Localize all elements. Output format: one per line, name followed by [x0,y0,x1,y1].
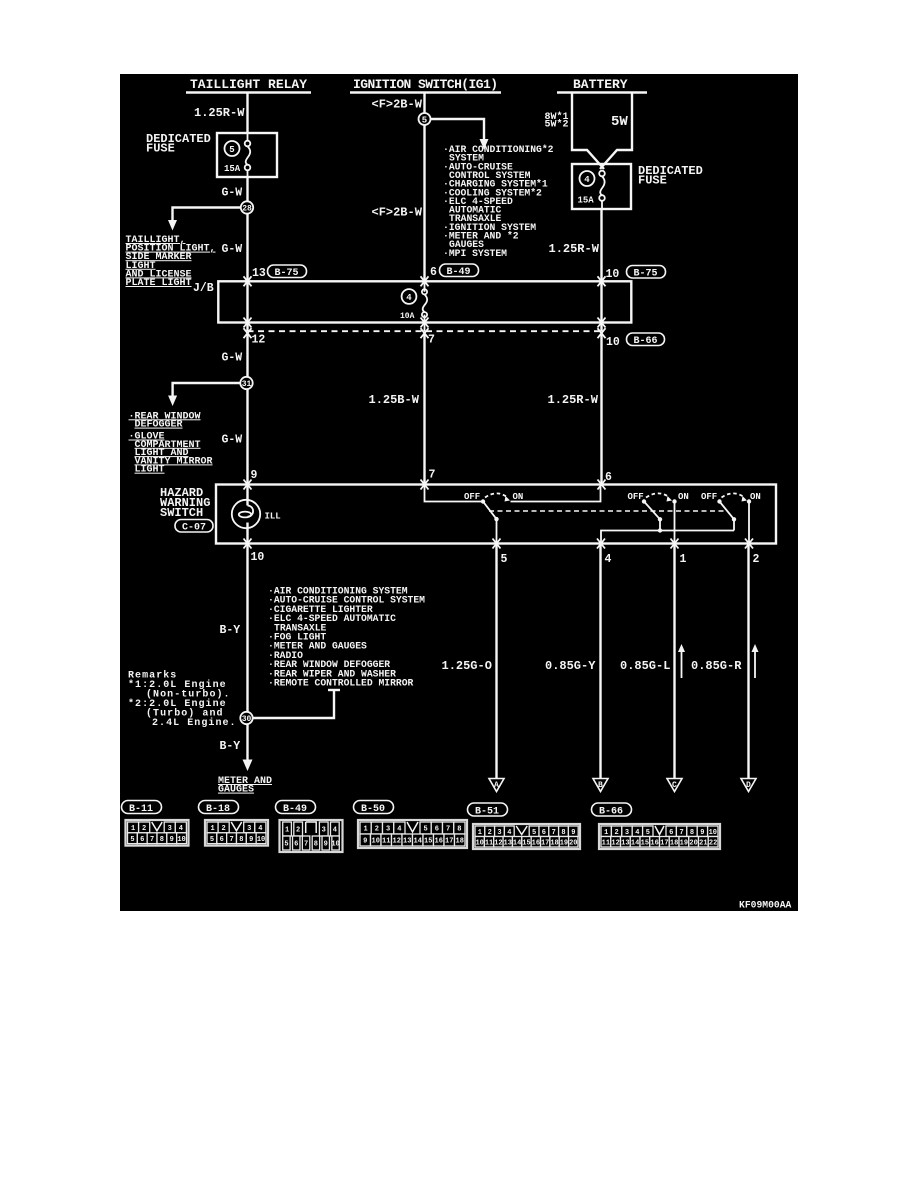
svg-text:12: 12 [393,838,401,846]
svg-text:8: 8 [457,826,461,834]
svg-text:14: 14 [414,838,422,846]
svg-text:15: 15 [424,838,432,846]
svg-text:10: 10 [251,551,265,564]
svg-text:1.25R-W: 1.25R-W [194,106,245,120]
svg-text:OFF: OFF [464,492,480,502]
svg-text:B-49: B-49 [283,804,307,815]
svg-text:·REMOTE CONTROLLED MIRROR: ·REMOTE CONTROLLED MIRROR [268,678,414,689]
svg-text:4: 4 [406,293,412,303]
svg-text:20: 20 [689,839,697,847]
svg-text:SWITCH: SWITCH [160,506,203,520]
svg-text:18: 18 [550,839,558,847]
svg-text:10: 10 [709,829,717,837]
svg-text:1.25G-O: 1.25G-O [442,659,492,673]
svg-text:B-18: B-18 [206,804,230,815]
svg-text:8: 8 [314,841,318,849]
svg-text:DEFOGGER: DEFOGGER [135,420,183,431]
svg-text:5: 5 [646,829,650,837]
svg-text:13: 13 [252,267,266,280]
svg-text:1.25R-W: 1.25R-W [549,242,600,256]
svg-text:7: 7 [446,826,450,834]
svg-text:5: 5 [501,553,508,566]
svg-text:3: 3 [497,829,501,837]
svg-text:5: 5 [210,836,214,844]
svg-text:8: 8 [239,836,243,844]
svg-text:LIGHT: LIGHT [135,465,165,476]
svg-text:PLATE LIGHT: PLATE LIGHT [126,278,192,289]
svg-text:3: 3 [322,827,326,835]
svg-text:12: 12 [494,839,502,847]
svg-text:10: 10 [177,836,185,844]
svg-text:10: 10 [475,839,483,847]
svg-text:6: 6 [430,266,437,279]
svg-text:1.25R-W: 1.25R-W [548,393,599,407]
svg-text:2: 2 [222,825,226,833]
svg-text:1: 1 [131,825,135,833]
svg-text:13: 13 [403,838,411,846]
svg-text:2: 2 [296,827,300,835]
svg-text:12: 12 [611,839,619,847]
svg-text:10: 10 [606,268,620,281]
svg-text:8: 8 [561,829,565,837]
svg-text:9: 9 [571,829,575,837]
svg-text:2: 2 [488,829,492,837]
svg-text:7: 7 [229,836,233,844]
svg-text:21: 21 [699,839,707,847]
svg-text:10: 10 [257,836,265,844]
svg-text:6: 6 [435,826,439,834]
svg-text:B-75: B-75 [634,268,658,279]
svg-text:3: 3 [247,825,251,833]
svg-text:15: 15 [522,839,530,847]
svg-text:9: 9 [700,829,704,837]
svg-text:5: 5 [532,829,536,837]
svg-text:G-W: G-W [222,434,243,447]
svg-text:2: 2 [375,826,379,834]
svg-text:FUSE: FUSE [638,174,667,188]
svg-text:G-W: G-W [222,352,243,365]
svg-text:9: 9 [363,838,367,846]
svg-text:ON: ON [678,492,689,502]
svg-text:B-11: B-11 [129,804,153,815]
svg-text:7: 7 [304,841,308,849]
svg-text:1: 1 [680,553,687,566]
svg-text:B-Y: B-Y [220,740,241,753]
svg-text:7: 7 [552,829,556,837]
svg-text:B-66: B-66 [634,336,658,347]
svg-text:0.85G-L: 0.85G-L [620,659,670,673]
svg-text:1: 1 [478,829,482,837]
svg-text:1.25B-W: 1.25B-W [369,393,420,407]
svg-text:10: 10 [606,336,620,349]
svg-text:15A: 15A [224,164,241,174]
svg-text:9: 9 [170,836,174,844]
svg-text:B-51: B-51 [475,806,499,817]
svg-text:0.85G-R: 0.85G-R [691,659,742,673]
svg-text:KF09M00AA: KF09M00AA [739,900,792,911]
svg-text:16: 16 [435,838,443,846]
svg-text:7: 7 [150,836,154,844]
svg-text:B-75: B-75 [275,268,299,279]
svg-text:1: 1 [210,825,214,833]
svg-text:3: 3 [625,829,629,837]
svg-text:17: 17 [445,838,453,846]
svg-text:13: 13 [621,839,629,847]
svg-text:J/B: J/B [193,282,214,295]
svg-text:2: 2 [142,825,146,833]
svg-text:17: 17 [541,839,549,847]
svg-text:OFF: OFF [701,492,717,502]
svg-text:5: 5 [424,826,428,834]
svg-text:4: 4 [258,825,262,833]
svg-text:16: 16 [532,839,540,847]
svg-text:17: 17 [660,839,668,847]
svg-text:B-49: B-49 [447,267,471,278]
svg-text:D: D [746,781,751,790]
svg-text:ON: ON [750,492,761,502]
svg-text:15A: 15A [578,196,595,206]
svg-text:11: 11 [602,839,610,847]
svg-text:28: 28 [242,205,252,214]
svg-text:A: A [494,781,499,790]
svg-text:12: 12 [252,334,266,347]
svg-text:6: 6 [605,471,612,484]
svg-text:4: 4 [333,827,337,835]
svg-text:6: 6 [294,841,298,849]
svg-text:G-W: G-W [222,187,243,200]
svg-text:8: 8 [160,836,164,844]
svg-text:10A: 10A [400,312,415,321]
svg-text:8: 8 [690,829,694,837]
svg-text:ON: ON [513,492,524,502]
svg-text:1: 1 [285,827,289,835]
svg-text:7: 7 [429,469,436,482]
svg-text:5: 5 [422,115,427,125]
svg-text:20: 20 [569,839,577,847]
svg-text:TAILLIGHT RELAY: TAILLIGHT RELAY [190,77,307,92]
svg-text:1: 1 [604,829,608,837]
svg-text:FUSE: FUSE [146,142,175,156]
svg-text:2: 2 [753,553,760,566]
svg-text:7: 7 [428,334,435,347]
svg-text:B-66: B-66 [599,806,623,817]
svg-text:22: 22 [709,839,717,847]
svg-text:18: 18 [670,839,678,847]
svg-text:6: 6 [669,829,673,837]
svg-text:5: 5 [130,836,134,844]
svg-text:1: 1 [364,826,368,834]
svg-text:B: B [598,781,603,790]
svg-text:OFF: OFF [628,492,644,502]
svg-text:10: 10 [372,838,380,846]
svg-text:10: 10 [331,841,339,849]
svg-text:G-W: G-W [222,243,243,256]
svg-text:5: 5 [284,841,288,849]
svg-text:4: 4 [397,826,401,834]
svg-text:B-Y: B-Y [220,624,241,637]
svg-text:30: 30 [242,715,252,724]
svg-text:4: 4 [179,825,183,833]
svg-text:<F>2B-W: <F>2B-W [372,98,423,112]
svg-text:BATTERY: BATTERY [573,77,628,92]
svg-text:2: 2 [614,829,618,837]
svg-text:7: 7 [679,829,683,837]
svg-text:4: 4 [605,553,612,566]
svg-text:GAUGES: GAUGES [218,785,254,796]
svg-text:6: 6 [542,829,546,837]
svg-text:9: 9 [249,836,253,844]
svg-text:·MPI SYSTEM: ·MPI SYSTEM [443,248,507,259]
svg-text:3: 3 [386,826,390,834]
svg-text:13: 13 [504,839,512,847]
svg-text:19: 19 [560,839,568,847]
svg-text:C: C [672,781,677,790]
svg-text:3: 3 [168,825,172,833]
svg-text:6: 6 [140,836,144,844]
svg-text:C-07: C-07 [182,522,206,533]
svg-text:14: 14 [631,839,639,847]
svg-text:2.4L Engine.: 2.4L Engine. [152,717,237,729]
svg-text:16: 16 [650,839,658,847]
svg-text:5W*2: 5W*2 [545,119,569,131]
svg-text:IGNITION SWITCH(IG1): IGNITION SWITCH(IG1) [353,77,498,92]
svg-text:11: 11 [382,838,390,846]
svg-text:11: 11 [485,839,493,847]
svg-text:5: 5 [229,145,234,155]
svg-text:4: 4 [635,829,639,837]
svg-text:ILL: ILL [265,512,281,522]
svg-text:6: 6 [220,836,224,844]
svg-text:15: 15 [641,839,649,847]
svg-text:0.85G-Y: 0.85G-Y [545,659,596,673]
svg-text:4: 4 [507,829,511,837]
svg-text:5W: 5W [611,114,628,130]
svg-text:<F>2B-W: <F>2B-W [372,206,423,220]
svg-text:14: 14 [513,839,521,847]
svg-text:19: 19 [680,839,688,847]
svg-text:18: 18 [456,838,464,846]
svg-text:31: 31 [242,380,252,389]
svg-text:9: 9 [324,841,328,849]
svg-text:B-50: B-50 [361,804,385,815]
svg-text:4: 4 [584,175,590,185]
